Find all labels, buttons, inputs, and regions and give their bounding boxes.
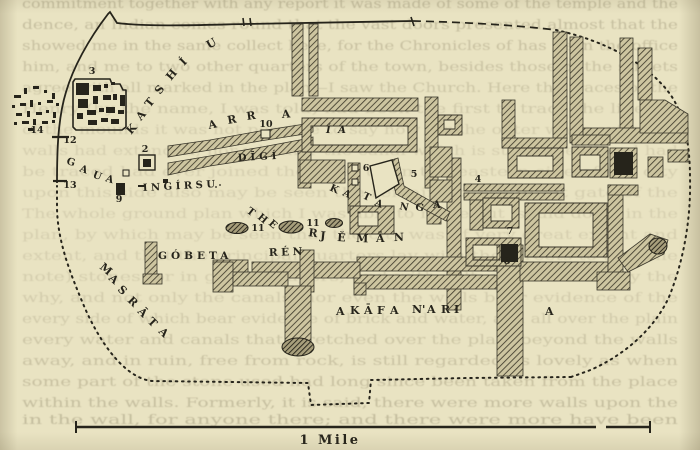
hatch-block <box>502 100 515 143</box>
site-3-building <box>88 120 97 125</box>
site-14-ruin-mark <box>30 100 33 107</box>
site-14-ruin-mark <box>52 93 55 99</box>
hatch-block <box>608 185 623 285</box>
site-number-8: 8 <box>504 256 511 267</box>
hatch-block <box>354 275 497 289</box>
site-3-building <box>104 84 108 88</box>
site-number-3: 3 <box>89 66 96 77</box>
label-ren: RÉN <box>269 244 306 259</box>
label-akafa-nari: F <box>377 304 385 317</box>
hatch-block <box>597 272 630 290</box>
site-number-10: 10 <box>259 119 273 130</box>
site-3-building <box>111 82 115 85</box>
hatch-block <box>430 180 452 202</box>
site-14-ruin-mark <box>12 105 15 108</box>
site-3-building <box>78 99 88 108</box>
mound-ellipse <box>279 221 303 233</box>
site-3-building <box>93 96 98 104</box>
site-number-5: 5 <box>411 169 418 180</box>
small-outline-square <box>123 170 129 176</box>
dark-block <box>614 152 633 175</box>
site-14-ruin-mark <box>47 100 53 103</box>
site-3-building <box>76 83 89 95</box>
label-akafa-nari: A <box>426 303 436 316</box>
hatch-block <box>553 32 567 140</box>
ghost-text-line: away, and in ruin, free from rock, is st… <box>22 354 679 369</box>
label-rjeman: M <box>356 232 369 245</box>
boundary-tick <box>250 18 251 26</box>
ghost-text-line: some part of the stone used had long sin… <box>22 375 678 390</box>
site-3-building <box>113 94 117 100</box>
hatch-enclosure <box>508 148 563 178</box>
site-number-6: 6 <box>363 163 370 174</box>
site-14-ruin-mark <box>27 111 30 117</box>
site-number-11: 11 <box>306 218 319 229</box>
site-14-ruin-mark <box>22 121 29 124</box>
mound-ellipse <box>226 223 248 234</box>
small-outline-square <box>352 165 358 171</box>
site-3-building <box>103 95 111 100</box>
site-14-ruin-mark <box>36 112 42 115</box>
hatch-block <box>143 274 162 284</box>
hatch-block <box>285 286 311 344</box>
label-akafa-nari: Ā <box>363 304 373 317</box>
hatch-block <box>300 160 345 183</box>
site-14-ruin-mark <box>53 112 56 118</box>
site-14-ruin-mark <box>56 103 59 106</box>
site-number-9: 9 <box>116 194 123 205</box>
hatch-block <box>668 150 688 162</box>
site-14-ruin-mark <box>46 110 49 113</box>
label-akafa-nari: R <box>441 303 451 316</box>
label-arra: A <box>280 107 291 121</box>
site-number-14: 14 <box>30 125 44 136</box>
label-akafa-nari: K <box>350 304 360 317</box>
site-3-building <box>99 108 104 112</box>
site-14-ruin-mark <box>24 88 27 94</box>
ghost-text-line: dence, an Indian comes round that the va… <box>22 18 678 33</box>
label-digi: DĪGÍ <box>238 150 281 164</box>
hatch-block <box>354 283 366 295</box>
hatch-block <box>430 147 452 177</box>
site-number-12: 12 <box>63 135 76 146</box>
hatch-block <box>608 185 638 195</box>
site-2-core <box>143 159 151 167</box>
hatch-block <box>520 262 608 281</box>
site-number-7: 7 <box>507 226 514 237</box>
site-3-building <box>101 118 108 122</box>
site-3-building <box>87 110 96 115</box>
hatch-block <box>570 37 583 143</box>
label-rjeman: Ĕ <box>337 230 346 245</box>
mound-ellipse <box>326 219 343 228</box>
dark-knob <box>282 338 314 356</box>
hatch-block <box>233 272 288 286</box>
hatch-block <box>309 24 318 96</box>
ghost-text-line: commitment together with any report it w… <box>22 0 678 12</box>
map-dot <box>219 184 221 186</box>
label-akafa-nari: N' <box>412 303 425 316</box>
hatch-block <box>464 184 564 191</box>
hatch-enclosure <box>572 147 608 177</box>
label-katanga: A <box>432 200 441 211</box>
hatch-block <box>620 38 633 135</box>
label-akafa-nari: I <box>454 303 459 316</box>
site-14-ruin-mark <box>33 86 39 89</box>
site-number-13: 13 <box>63 180 76 191</box>
label-aria-a: A <box>544 305 554 318</box>
hatch-block <box>213 262 233 292</box>
site-number-11: 11 <box>251 223 264 234</box>
hatch-block <box>572 135 610 145</box>
hatch-block <box>292 24 303 96</box>
site-14-ruin-mark <box>14 95 21 98</box>
site-14-ruin-mark <box>42 121 48 124</box>
ghost-text-line: in the wall, for anyone there; and there… <box>22 413 679 428</box>
boundary-tick <box>243 18 244 26</box>
label-rjeman: Ā <box>375 232 385 245</box>
label-ia: Í A <box>325 124 348 136</box>
dark-knob <box>649 238 667 254</box>
label-akafa-nari: A <box>335 305 345 318</box>
hatch-block <box>638 48 652 100</box>
site-14-ruin-mark <box>38 102 41 105</box>
ghost-text-line: every water and canals that stretched ov… <box>22 333 678 348</box>
site-number-4: 4 <box>475 174 482 185</box>
scanned-book-page: commitment together with any report it w… <box>0 0 700 450</box>
site-3-building <box>77 113 83 119</box>
hatch-block <box>640 100 688 133</box>
city-map: commitment together with any report it w… <box>0 0 700 450</box>
site-14-ruin-mark <box>52 120 55 123</box>
hatch-block <box>648 157 663 177</box>
site-3-building <box>93 85 101 91</box>
hatch-block <box>470 200 483 230</box>
site-14-ruin-mark <box>14 122 17 125</box>
site-3-building <box>120 95 125 106</box>
site-number-2: 2 <box>142 144 149 155</box>
hatch-block <box>145 242 157 278</box>
hatch-block <box>502 138 567 148</box>
scale-bar-label: 1 Mile <box>299 433 360 448</box>
label-gobeta: GÓBETA <box>158 248 232 262</box>
site-3-building <box>118 110 124 114</box>
label-akafa-nari: A <box>389 304 399 317</box>
site-14-ruin-mark <box>44 90 47 93</box>
label-katanga: G <box>415 202 425 214</box>
site-14-ruin-mark <box>20 103 26 106</box>
hatch-block <box>302 98 418 111</box>
small-outline-square <box>352 179 358 185</box>
site-3-building <box>111 119 119 124</box>
label-rjeman: N <box>394 231 405 244</box>
site-14-ruin-mark <box>16 113 22 116</box>
small-outline-square <box>261 130 270 138</box>
site-3-building <box>106 107 115 113</box>
